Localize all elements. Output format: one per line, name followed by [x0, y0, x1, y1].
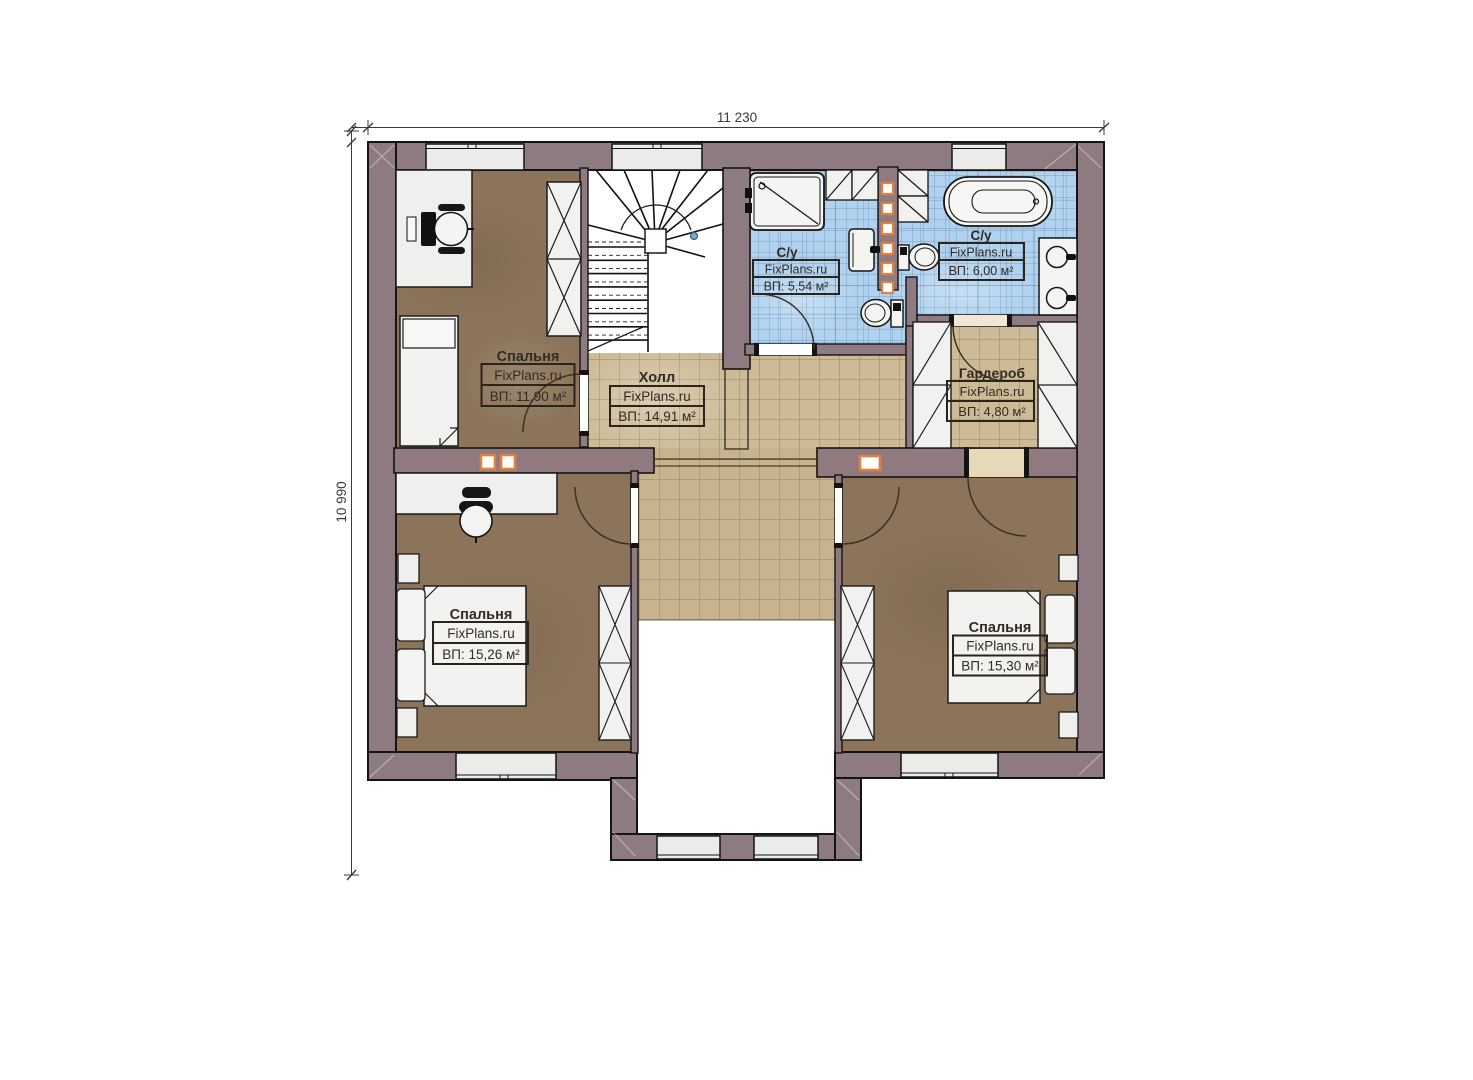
- svg-text:Спальня: Спальня: [969, 620, 1032, 636]
- svg-text:FixPlans.ru: FixPlans.ru: [966, 639, 1034, 654]
- svg-text:FixPlans.ru: FixPlans.ru: [950, 246, 1013, 260]
- svg-text:FixPlans.ru: FixPlans.ru: [494, 368, 562, 383]
- svg-text:FixPlans.ru: FixPlans.ru: [959, 384, 1024, 399]
- svg-text:ВП: 5,54 м²: ВП: 5,54 м²: [764, 280, 829, 294]
- svg-text:Спальня: Спальня: [497, 349, 560, 365]
- svg-text:FixPlans.ru: FixPlans.ru: [447, 626, 515, 641]
- svg-text:ВП: 14,91 м²: ВП: 14,91 м²: [618, 409, 696, 424]
- svg-text:ВП: 15,26 м²: ВП: 15,26 м²: [442, 647, 520, 662]
- svg-text:FixPlans.ru: FixPlans.ru: [623, 389, 691, 404]
- svg-text:ВП: 6,00 м²: ВП: 6,00 м²: [949, 264, 1014, 278]
- svg-text:Гардероб: Гардероб: [959, 365, 1026, 381]
- svg-text:10 990: 10 990: [334, 481, 349, 522]
- svg-text:FixPlans.ru: FixPlans.ru: [765, 263, 828, 277]
- svg-text:С/у: С/у: [970, 228, 992, 243]
- svg-text:ВП: 4,80 м²: ВП: 4,80 м²: [958, 404, 1026, 419]
- svg-text:Холл: Холл: [639, 370, 675, 386]
- svg-text:Спальня: Спальня: [450, 607, 513, 623]
- svg-text:11 230: 11 230: [717, 110, 757, 125]
- svg-text:ВП: 11,90 м²: ВП: 11,90 м²: [490, 389, 567, 404]
- svg-text:С/у: С/у: [776, 245, 798, 260]
- svg-text:ВП: 15,30 м²: ВП: 15,30 м²: [961, 659, 1039, 674]
